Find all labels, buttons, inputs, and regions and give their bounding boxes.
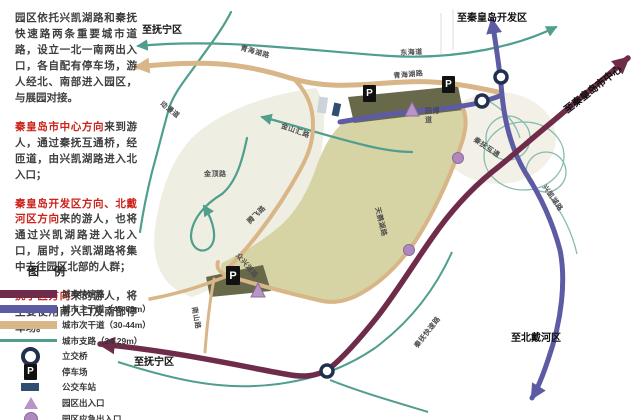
parking-icon: P <box>363 85 376 102</box>
label-donghai-road: 东海道 <box>400 47 423 58</box>
intro-paragraph: 园区依托兴凯湖路和秦抚快速路两条重要城市道路，设立一北一南两出入口，各自配有停车… <box>15 11 137 107</box>
emergency-exit-icon <box>24 412 38 420</box>
legend-item-secondary: 城市次干道（30-44m） <box>0 317 170 333</box>
arterial-swatch <box>0 305 57 313</box>
dest-funing-bottom: 至抚宁区 <box>134 353 174 368</box>
expressway-swatch <box>0 290 57 298</box>
label-yuanbo-road: 园博道 <box>425 108 441 126</box>
bus-station-icon <box>21 383 39 391</box>
parking-icon: P <box>24 364 37 380</box>
legend-title: 图 例 <box>28 263 170 279</box>
legend-item-bus: 公交车站 <box>0 380 170 396</box>
legend-item-expressway: 城市快速路 <box>0 286 170 302</box>
legend-item-entrance: 园区出入口 <box>0 395 170 411</box>
parking-icon: P <box>442 76 455 93</box>
legend: 图 例 城市快速路 城市主干道（45-60m） 城市次干道（30-44m） 城市… <box>0 263 170 420</box>
planning-map-page: 园区依托兴凯湖路和秦抚快速路两条重要城市道路，设立一北一南两出入口，各自配有停车… <box>0 0 640 420</box>
minor-road <box>441 9 453 54</box>
bus-station-icon <box>332 103 342 117</box>
direction-highlight: 秦皇岛市中心方向 <box>15 121 104 133</box>
branch-swatch <box>0 339 57 342</box>
dest-beidaihe: 至北戴河区 <box>511 329 561 344</box>
label-jinding-road: 金顶路 <box>204 169 227 179</box>
park-entrance-icon <box>24 397 38 409</box>
dest-kaifaqu: 至秦皇岛开发区 <box>457 9 527 24</box>
dest-funing-top: 至抚宁区 <box>142 21 182 36</box>
paragraph-city-center: 秦皇岛市中心方向来到游人，通过秦抚互通桥，经匝道，由兴凯湖路进入北入口； <box>15 120 137 184</box>
legend-item-arterial: 城市主干道（45-60m） <box>0 302 170 318</box>
parking-icon: P <box>226 266 240 285</box>
legend-item-emergency: 园区应急出入口 <box>0 411 170 420</box>
secondary-swatch <box>0 321 57 329</box>
